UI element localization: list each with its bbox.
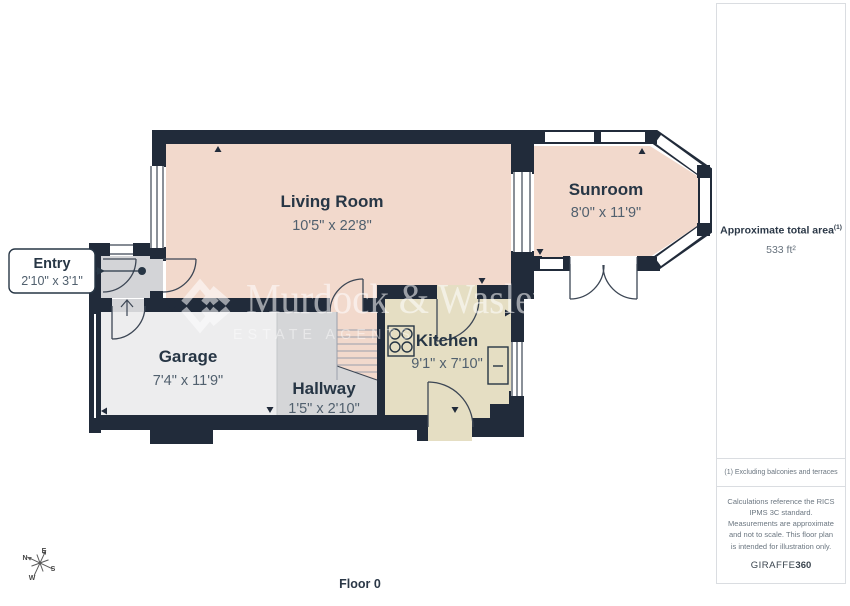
floor-label: Floor 0	[300, 577, 420, 591]
window-living-left	[150, 166, 164, 248]
kitchen-label: Kitchen	[416, 331, 478, 350]
area-superscript: (1)	[834, 224, 842, 231]
sunroom-dims: 8'0" x 11'9"	[571, 205, 641, 221]
garage-dims: 7'4" x 11'9"	[153, 373, 223, 389]
compass-s: S	[51, 566, 56, 573]
watermark-tagline-text: ESTATE AGENTS	[233, 326, 415, 343]
callout-target-dot	[138, 267, 146, 275]
sunroom-floor	[534, 146, 699, 257]
area-summary: Approximate total area(1) 533 ft²	[717, 4, 845, 458]
window-living-sunroom	[513, 172, 532, 252]
legal-disclaimer: Calculations reference the RICS IPMS 3C …	[717, 486, 845, 584]
living-room-dims: 10'5" x 22'8"	[292, 218, 372, 234]
living-room-label: Living Room	[281, 192, 384, 211]
window-kitchen-right	[511, 342, 524, 396]
area-footnote: (1) Excluding balconies and terraces	[717, 458, 845, 486]
kitchen-dims: 9'1" x 7'10"	[411, 356, 482, 372]
compass-n: N	[22, 555, 27, 562]
giraffe-brand-number: 360	[795, 560, 811, 571]
giraffe-brand-name: GIRAFFE	[751, 560, 796, 571]
entry-dims: 2'10" x 3'1"	[21, 274, 83, 288]
compass-e: E	[42, 548, 47, 555]
hallway-dims: 1'5" x 2'10"	[288, 401, 359, 417]
hallway-label: Hallway	[292, 379, 356, 398]
giraffe360-logo: GIRAFFE360	[726, 559, 836, 573]
garage-label: Garage	[159, 347, 218, 366]
compass-w: W	[29, 575, 36, 582]
disclaimer-text: Calculations reference the RICS IPMS 3C …	[726, 496, 836, 552]
compass-rose: N E S W	[21, 544, 58, 582]
window-entry-top	[110, 244, 133, 256]
area-value: 533 ft²	[717, 244, 845, 256]
area-title: Approximate total area(1)	[717, 224, 845, 237]
sunroom-label: Sunroom	[569, 180, 644, 199]
watermark-brand-text: Murdock & Wasley	[246, 277, 552, 323]
entry-label: Entry	[33, 256, 70, 272]
info-sidebar: Approximate total area(1) 533 ft² (1) Ex…	[716, 3, 846, 584]
area-title-text: Approximate total area	[720, 225, 834, 237]
